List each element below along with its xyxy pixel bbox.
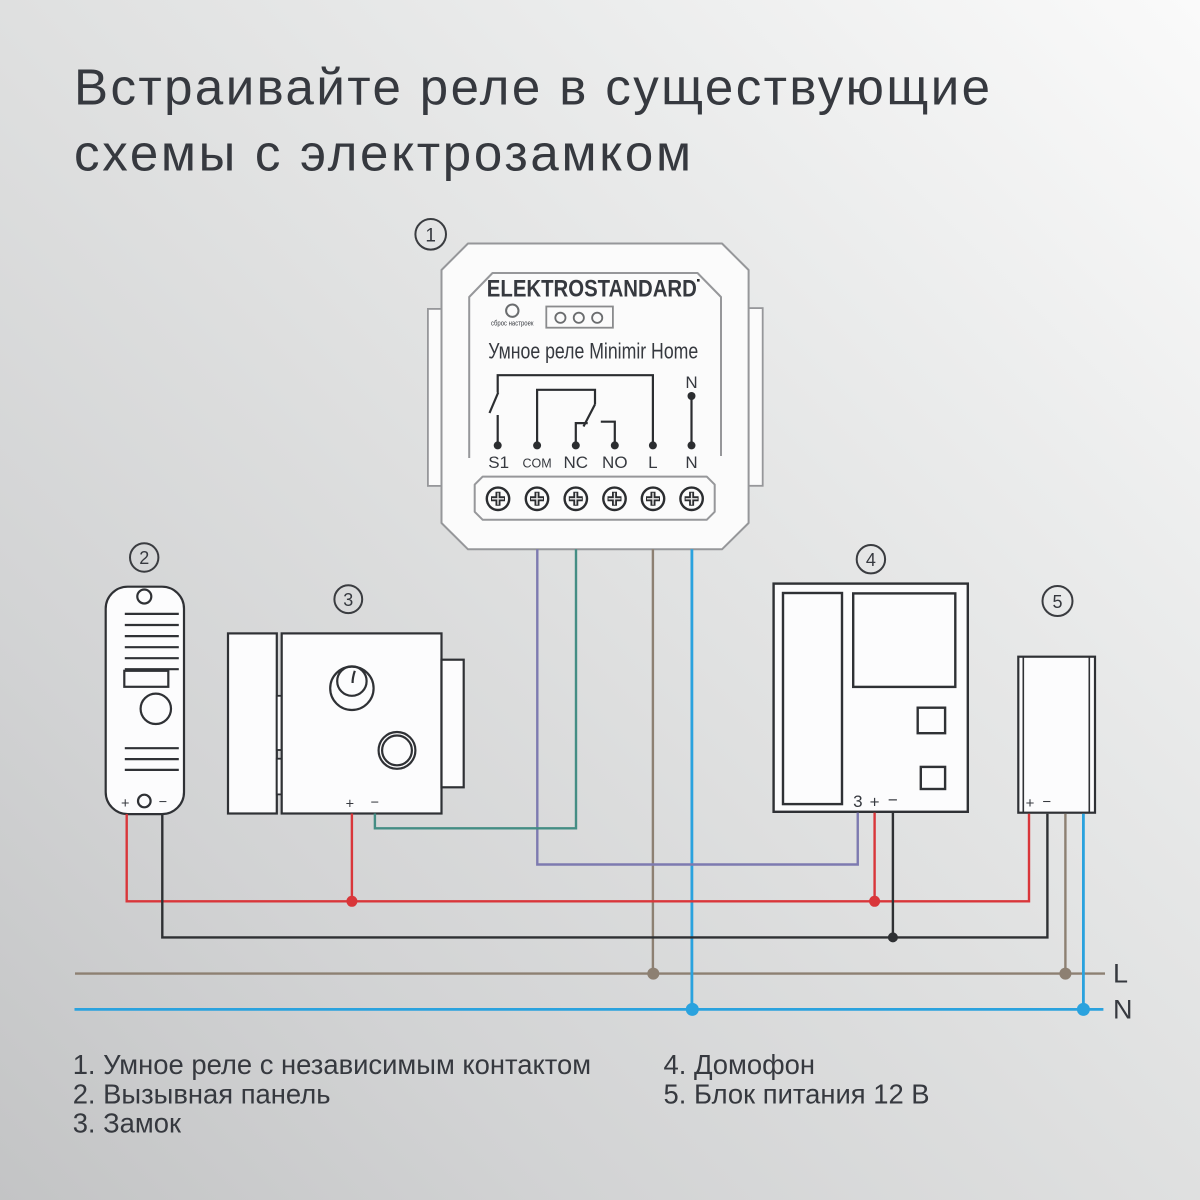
svg-text:−: − bbox=[888, 791, 898, 810]
svg-text:3: 3 bbox=[853, 792, 862, 811]
svg-text:L: L bbox=[648, 453, 657, 472]
svg-text:схемы с электрозамком: схемы с электрозамком bbox=[74, 125, 691, 182]
svg-text:−: − bbox=[1042, 794, 1051, 811]
svg-text:4. Домофон: 4. Домофон bbox=[664, 1049, 816, 1080]
svg-text:сброс настроек: сброс настроек bbox=[491, 319, 534, 328]
svg-text:−: − bbox=[159, 795, 167, 811]
svg-text:COM: COM bbox=[523, 457, 552, 471]
svg-text:NC: NC bbox=[564, 453, 589, 472]
svg-text:ELEKTROSTANDARD: ELEKTROSTANDARD bbox=[487, 276, 697, 303]
svg-text:+: + bbox=[870, 793, 880, 812]
svg-text:2. Вызывная панель: 2. Вызывная панель bbox=[73, 1078, 331, 1109]
svg-text:1: 1 bbox=[425, 225, 436, 246]
svg-text:N: N bbox=[685, 453, 697, 472]
svg-text:2: 2 bbox=[139, 548, 149, 568]
svg-text:+: + bbox=[346, 797, 354, 813]
svg-text:+: + bbox=[1026, 795, 1035, 812]
svg-text:−: − bbox=[371, 795, 379, 811]
svg-text:NO: NO bbox=[602, 453, 628, 472]
svg-text:N: N bbox=[685, 373, 697, 392]
svg-text:1. Умное реле с независимым ко: 1. Умное реле с независимым контактом bbox=[73, 1049, 591, 1080]
svg-text:N: N bbox=[1113, 995, 1133, 1025]
svg-text:3. Замок: 3. Замок bbox=[73, 1108, 182, 1139]
svg-text:Встраивайте реле в существующи: Встраивайте реле в существующие bbox=[74, 59, 990, 116]
svg-text:S1: S1 bbox=[488, 453, 509, 472]
svg-text:Умное реле Minimir Home: Умное реле Minimir Home bbox=[488, 339, 698, 364]
svg-text:+: + bbox=[121, 796, 129, 812]
svg-text:3: 3 bbox=[343, 590, 353, 610]
svg-text:L: L bbox=[1113, 959, 1128, 989]
svg-text:4: 4 bbox=[866, 550, 876, 570]
svg-text:5. Блок питания 12 В: 5. Блок питания 12 В bbox=[664, 1078, 930, 1109]
svg-text:5: 5 bbox=[1052, 592, 1062, 612]
